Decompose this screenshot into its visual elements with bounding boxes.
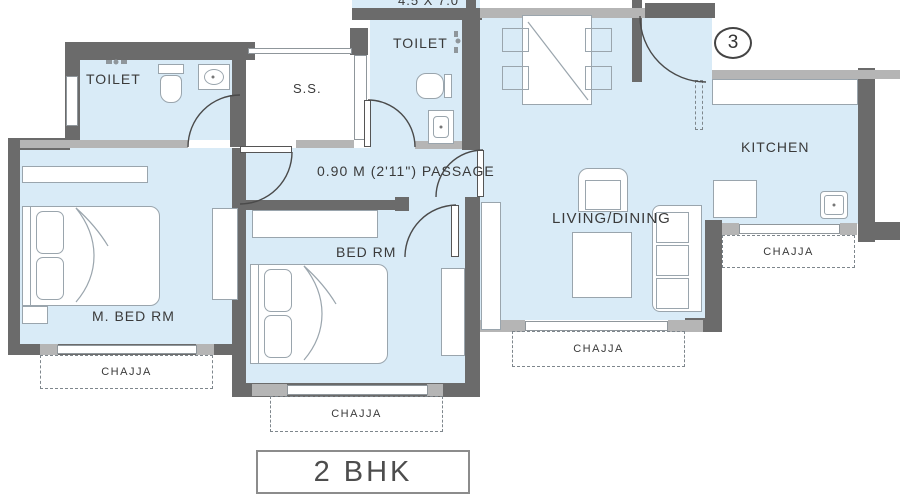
toilet-2-sink-basin [433, 116, 449, 138]
wall [465, 197, 480, 397]
bed-pillow [264, 315, 292, 358]
room-label-master-bedroom: M. BED RM [92, 308, 175, 324]
chajja-bedroom: CHAJJA [270, 396, 443, 432]
unit-type-box: 2 BHK [256, 450, 470, 494]
chajja-label: CHAJJA [331, 408, 382, 420]
chajja-label: CHAJJA [763, 246, 814, 258]
door-leaf-bedroom [451, 205, 459, 257]
wall-light [296, 140, 354, 148]
wall [858, 222, 900, 240]
room-label-passage: 0.90 M (2'11") PASSAGE [317, 163, 495, 179]
wall [246, 200, 396, 210]
door-leaf-store [240, 146, 292, 153]
wall-light [20, 140, 188, 148]
door-leaf-toilet-2 [364, 100, 371, 147]
room-label-living: LIVING/DINING [552, 210, 671, 227]
master-bedroom-dresser [22, 166, 148, 183]
bed-pillow [264, 269, 292, 312]
room-label-kitchen: KITCHEN [741, 139, 809, 155]
chajja-living: CHAJJA [512, 331, 685, 367]
master-bed-side-table [22, 306, 48, 324]
dining-chair [585, 28, 612, 52]
kitchen-sink-basin [824, 195, 844, 215]
room-label-toilet-1: TOILET [86, 71, 141, 87]
toilet-1-wc-bowl [160, 75, 182, 103]
dining-table [522, 15, 592, 105]
chajja-kitchen: CHAJJA [722, 235, 855, 268]
kitchen-sliding-door [695, 80, 703, 130]
wall [230, 95, 242, 147]
toilet-1-sink-basin [204, 69, 224, 85]
window [739, 224, 840, 234]
wall [705, 220, 722, 332]
kitchen-counter [712, 79, 858, 105]
room-fill-store [246, 54, 353, 146]
wall [395, 197, 409, 211]
wall [350, 28, 368, 55]
window-sill-block [840, 223, 857, 235]
master-bedroom-wardrobe [212, 208, 238, 300]
window-sill-block [196, 344, 214, 355]
window-sill-block [40, 344, 58, 355]
coffee-table-rug [572, 232, 632, 298]
chajja-label: CHAJJA [573, 343, 624, 355]
unit-number: 3 [728, 32, 739, 54]
wall [8, 138, 20, 355]
wall-light [712, 70, 900, 79]
window-sill-block [252, 384, 287, 396]
wall [466, 0, 476, 12]
toilet-2-wc-bowl [416, 73, 444, 99]
master-bed-pillow [36, 211, 64, 254]
room-label-bedroom: BED RM [336, 244, 396, 260]
armchair-cushion [585, 180, 621, 210]
living-cabinet [481, 202, 501, 330]
dining-chair [502, 66, 529, 90]
wall [645, 3, 715, 18]
chajja-label: CHAJJA [101, 366, 152, 378]
window [287, 385, 428, 395]
wall [65, 42, 255, 60]
window [248, 48, 352, 54]
kitchen-unit [713, 180, 757, 218]
window [525, 321, 668, 331]
toilet-1-wc-tank [158, 64, 184, 74]
window [57, 345, 197, 354]
floor-plan: CHAJJA CHAJJA CHAJJA CHAJJA TOILET TOILE… [0, 0, 900, 500]
window-sill-block [722, 223, 739, 235]
sofa-cushion [656, 245, 689, 276]
chajja-master-bedroom: CHAJJA [40, 355, 213, 389]
unit-type-label: 2 BHK [314, 456, 413, 489]
wall [462, 10, 480, 150]
bedroom-wardrobe-right [441, 268, 465, 356]
sofa-cushion [656, 278, 689, 309]
dining-chair [585, 66, 612, 90]
room-label-toilet-2: TOILET [393, 35, 448, 51]
window [66, 76, 78, 126]
window-sill-block [427, 384, 443, 396]
master-bed-pillow [36, 257, 64, 300]
bedroom-wardrobe-top [252, 210, 378, 238]
toilet-2-wc-tank [444, 74, 452, 98]
unit-number-badge: 3 [714, 27, 752, 59]
dimension-label: 4.5 X 7.0 [398, 0, 459, 8]
wall [858, 68, 875, 242]
dining-chair [502, 28, 529, 52]
room-label-store: S.S. [293, 81, 322, 96]
